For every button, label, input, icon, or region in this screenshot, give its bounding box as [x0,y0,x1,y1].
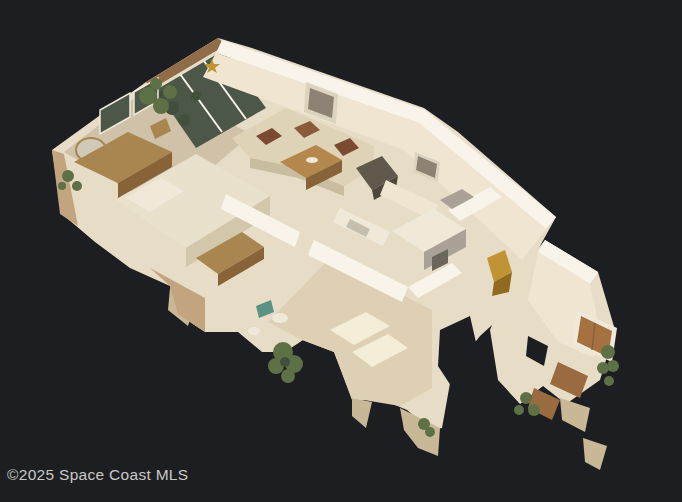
watermark-text: ©2025 Space Coast MLS [7,465,188,485]
bathroom-fixture [248,327,260,335]
bathroom-fixture [272,313,288,323]
listing-image: ©2025 Space Coast MLS [0,0,682,502]
coffee-table-decor [306,157,318,163]
dollhouse-3d-view [0,0,682,502]
